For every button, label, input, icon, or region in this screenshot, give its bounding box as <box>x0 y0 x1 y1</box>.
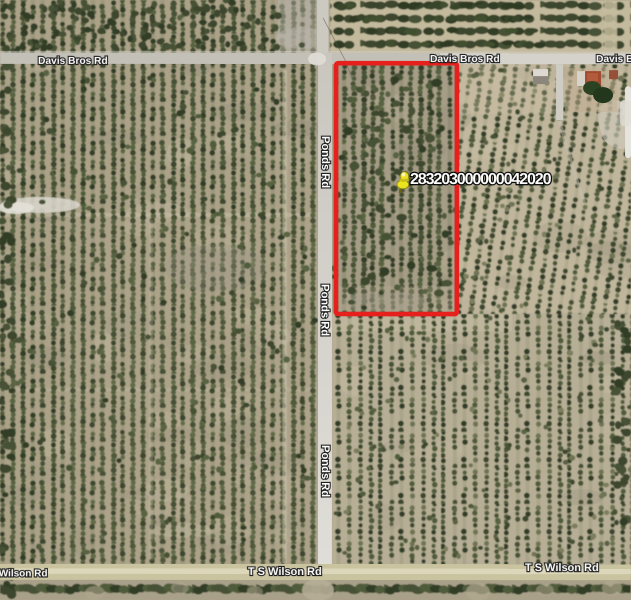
svg-text:T S Wilson Rd: T S Wilson Rd <box>248 566 322 578</box>
svg-text:Ponds Rd: Ponds Rd <box>319 445 331 497</box>
svg-text:Ponds Rd: Ponds Rd <box>319 136 331 188</box>
svg-text:283203000000042020: 283203000000042020 <box>410 171 552 188</box>
svg-text:Davis Bros Rd: Davis Bros Rd <box>38 56 108 67</box>
svg-text:T S Wilson Rd: T S Wilson Rd <box>525 562 599 574</box>
svg-text:T S Wilson Rd: T S Wilson Rd <box>0 568 48 579</box>
svg-text:Ponds Rd: Ponds Rd <box>318 284 330 336</box>
svg-text:Davis Bros Rd: Davis Bros Rd <box>596 54 631 65</box>
svg-text:Davis Bros Rd: Davis Bros Rd <box>430 54 500 65</box>
